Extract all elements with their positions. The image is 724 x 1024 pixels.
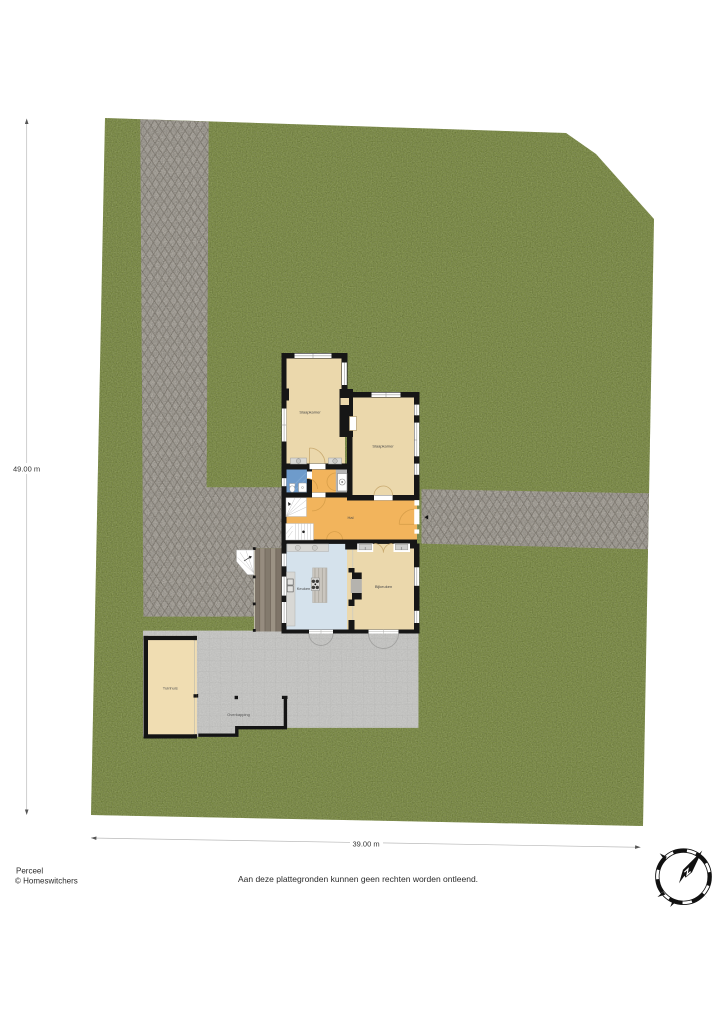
svg-text:49.00 m: 49.00 m	[13, 465, 40, 474]
svg-text:Aan deze plattegronden kunnen: Aan deze plattegronden kunnen geen recht…	[238, 874, 478, 884]
svg-text:© Homeswitchers: © Homeswitchers	[15, 876, 78, 885]
svg-text:Keuken: Keuken	[297, 586, 311, 591]
svg-text:Slaapkamer: Slaapkamer	[372, 444, 394, 449]
svg-text:Perceel: Perceel	[16, 867, 43, 876]
svg-text:Slaapkamer: Slaapkamer	[299, 410, 321, 415]
svg-text:Tuinhuis: Tuinhuis	[163, 686, 178, 691]
svg-text:Bijkeuken: Bijkeuken	[375, 584, 392, 589]
svg-text:Overkapping: Overkapping	[227, 712, 250, 717]
svg-text:39.00 m: 39.00 m	[353, 840, 380, 849]
svg-text:Hal: Hal	[347, 515, 353, 520]
